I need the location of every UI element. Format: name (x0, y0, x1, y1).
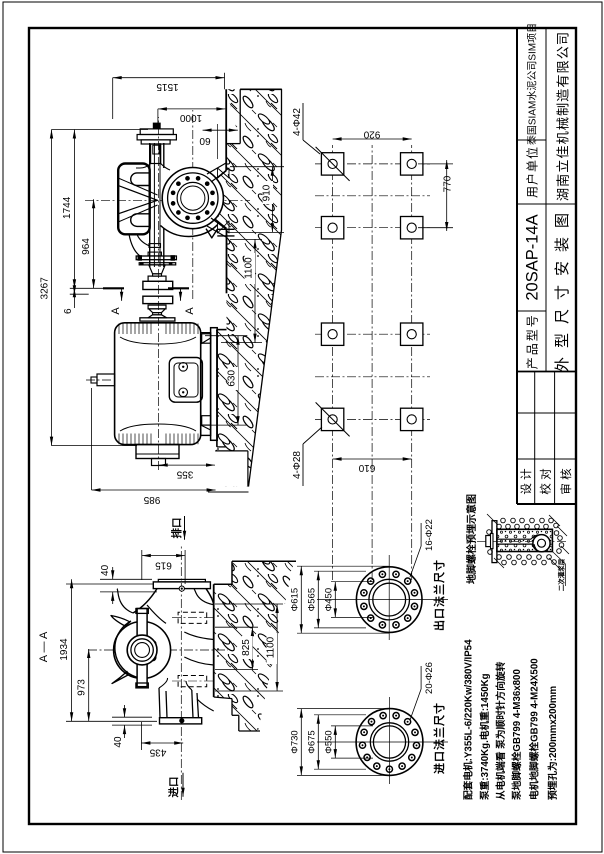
svg-text:进口: 进口 (167, 777, 180, 798)
svg-text:985: 985 (143, 494, 160, 505)
svg-text:355: 355 (176, 469, 193, 480)
svg-text:Φ675: Φ675 (307, 730, 318, 753)
svg-text:4-Φ42: 4-Φ42 (292, 108, 303, 136)
svg-text:地脚螺栓预埋示意图: 地脚螺栓预埋示意图 (465, 494, 478, 584)
svg-text:770: 770 (443, 175, 454, 192)
svg-text:泵重:3740Kg.电机重:1450Kg: 泵重:3740Kg.电机重:1450Kg (478, 673, 491, 800)
svg-text:Φ565: Φ565 (307, 588, 318, 611)
svg-text:A: A (184, 307, 196, 315)
svg-text:920: 920 (363, 129, 380, 140)
svg-text:40: 40 (113, 736, 124, 748)
svg-text:910: 910 (262, 184, 273, 201)
svg-text:进口法兰尺寸: 进口法兰尺寸 (432, 702, 446, 774)
svg-text:泵地脚螺栓GB799 4-M36x800: 泵地脚螺栓GB799 4-M36x800 (510, 669, 523, 800)
svg-text:A: A (110, 307, 122, 315)
svg-text:Φ450: Φ450 (324, 588, 335, 611)
svg-text:Φ615: Φ615 (290, 588, 301, 611)
svg-text:964: 964 (81, 238, 92, 255)
svg-text:1000: 1000 (179, 112, 202, 123)
svg-text:排口: 排口 (170, 518, 183, 539)
svg-text:615: 615 (155, 560, 172, 571)
svg-text:4-Φ28: 4-Φ28 (292, 451, 303, 479)
svg-text:6: 6 (63, 308, 74, 314)
svg-text:电机地脚螺栓GB799 4-M24X500: 电机地脚螺栓GB799 4-M24X500 (528, 658, 541, 800)
svg-text:1100: 1100 (266, 636, 277, 658)
svg-text:1934: 1934 (59, 638, 70, 661)
svg-text:973: 973 (77, 679, 88, 696)
svg-text:配套电机:Y355L-6/220Kw/380V/IP54: 配套电机:Y355L-6/220Kw/380V/IP54 (462, 639, 475, 800)
svg-text:校 对: 校 对 (539, 468, 553, 495)
svg-text:3267: 3267 (40, 277, 51, 300)
svg-text:湖南立佳机械制造有限公司: 湖南立佳机械制造有限公司 (556, 31, 571, 201)
svg-text:Φ730: Φ730 (290, 730, 301, 753)
svg-text:A — A: A — A (38, 631, 50, 662)
svg-text:用户单位: 用户单位 (525, 146, 540, 198)
svg-text:16-Φ22: 16-Φ22 (424, 519, 435, 551)
svg-text:Φ550: Φ550 (324, 730, 335, 753)
svg-text:60: 60 (199, 135, 211, 146)
svg-text:外型尺寸安装图: 外型尺寸安装图 (554, 204, 571, 372)
svg-text:设 计: 设 计 (520, 468, 533, 495)
svg-text:825: 825 (241, 639, 252, 656)
svg-text:610: 610 (358, 462, 375, 473)
svg-text:二次灌浆层: 二次灌浆层 (557, 558, 566, 591)
svg-text:20-Φ26: 20-Φ26 (424, 662, 435, 694)
svg-text:1744: 1744 (62, 196, 73, 219)
svg-text:40: 40 (100, 564, 111, 576)
svg-text:从电机端看 泵为顺时针方向旋转: 从电机端看 泵为顺时针方向旋转 (494, 661, 507, 800)
svg-text:20SAP-14A: 20SAP-14A (524, 214, 542, 300)
svg-text:审 核: 审 核 (559, 468, 573, 495)
svg-text:435: 435 (149, 747, 166, 758)
svg-text:630: 630 (227, 370, 238, 387)
svg-text:预埋孔为:200mmx200mm: 预埋孔为:200mmx200mm (546, 685, 559, 800)
svg-text:出口法兰尺寸: 出口法兰尺寸 (432, 559, 446, 631)
svg-text:1100: 1100 (244, 257, 255, 279)
svg-text:产品型号: 产品型号 (526, 313, 540, 369)
svg-text:泰国SIAM水泥公司SIM项目: 泰国SIAM水泥公司SIM项目 (526, 23, 539, 145)
svg-text:1515: 1515 (156, 81, 179, 92)
